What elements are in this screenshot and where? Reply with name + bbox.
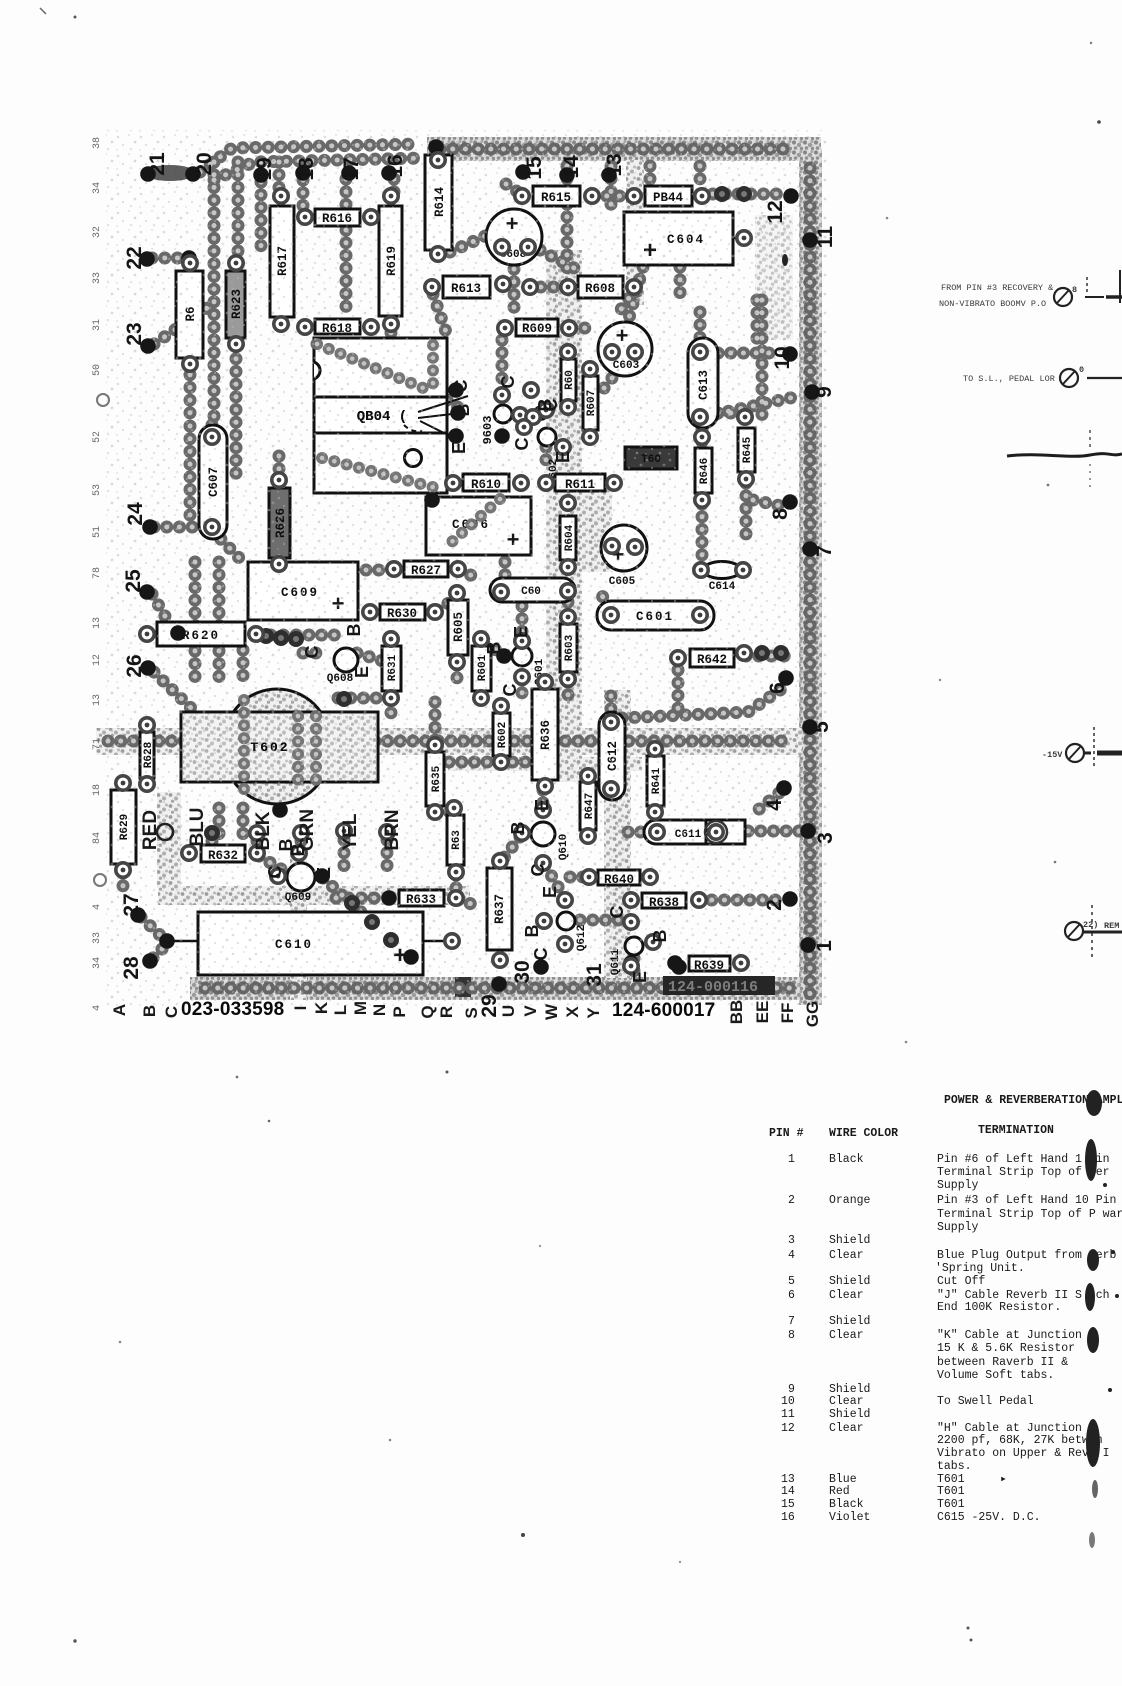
svg-text:T601: T601	[937, 1498, 965, 1511]
svg-text:17: 17	[340, 157, 363, 180]
svg-text:S: S	[462, 1007, 481, 1018]
svg-text:"K" Cable at Junction f: "K" Cable at Junction f	[937, 1329, 1096, 1342]
svg-text:To Swell Pedal: To Swell Pedal	[937, 1395, 1034, 1408]
svg-text:4: 4	[788, 1249, 795, 1262]
svg-text:4: 4	[92, 904, 103, 910]
svg-text:L: L	[331, 1005, 350, 1015]
svg-text:24: 24	[124, 502, 147, 526]
svg-text:BLK: BLK	[253, 811, 274, 850]
svg-text:C: C	[607, 906, 627, 919]
svg-text:3: 3	[788, 1234, 795, 1247]
svg-text:B: B	[522, 925, 542, 938]
svg-text:13: 13	[92, 617, 103, 629]
svg-text:between Raverb II &: between Raverb II &	[937, 1356, 1068, 1369]
svg-text:7: 7	[813, 545, 836, 557]
svg-text:TERMINATION: TERMINATION	[978, 1124, 1054, 1137]
svg-text:Black: Black	[829, 1498, 864, 1511]
svg-text:M: M	[351, 1001, 370, 1015]
svg-text:K: K	[312, 1001, 331, 1014]
svg-text:50: 50	[92, 364, 103, 376]
svg-text:NON-VIBRATO BOOMV P.O: NON-VIBRATO BOOMV P.O	[939, 299, 1046, 309]
svg-text:23: 23	[123, 322, 146, 345]
svg-text:18: 18	[295, 157, 318, 181]
svg-text:10: 10	[771, 346, 794, 369]
svg-text:53: 53	[92, 484, 103, 496]
svg-text:22): 22)	[1083, 920, 1098, 930]
svg-text:52: 52	[92, 431, 103, 443]
svg-text:Clear: Clear	[829, 1422, 864, 1435]
svg-text:WIRE COLOR: WIRE COLOR	[829, 1127, 898, 1140]
svg-text:12: 12	[781, 1422, 795, 1435]
svg-text:4: 4	[763, 799, 786, 811]
svg-text:7: 7	[788, 1315, 795, 1328]
svg-text:Pin #6 of Left Hand 1 Pin: Pin #6 of Left Hand 1 Pin	[937, 1153, 1110, 1166]
svg-text:51: 51	[92, 526, 103, 538]
svg-text:E: E	[532, 799, 552, 811]
svg-text:C: C	[512, 438, 532, 451]
svg-text:25: 25	[122, 569, 145, 593]
svg-text:C: C	[528, 864, 548, 877]
svg-text:15 K & 5.6K Resistor: 15 K & 5.6K Resistor	[937, 1342, 1075, 1355]
svg-text:P: P	[390, 1006, 409, 1017]
svg-text:Shield: Shield	[829, 1275, 870, 1288]
svg-text:11: 11	[814, 226, 837, 249]
svg-text:End 100K Resistor.: End 100K Resistor.	[937, 1301, 1061, 1314]
svg-text:T601: T601	[937, 1485, 965, 1498]
svg-text:Cut Off: Cut Off	[937, 1275, 985, 1288]
svg-text:V: V	[521, 1005, 540, 1017]
svg-text:29: 29	[478, 994, 501, 1017]
svg-text:RED: RED	[140, 810, 161, 850]
svg-text:32: 32	[92, 226, 103, 238]
svg-text:78: 78	[92, 567, 103, 579]
svg-text:Volume Soft tabs.: Volume Soft tabs.	[937, 1369, 1054, 1382]
svg-text:Shield: Shield	[829, 1408, 870, 1421]
svg-text:FROM PIN #3 RECOVERY &: FROM PIN #3 RECOVERY &	[941, 283, 1053, 293]
svg-text:2: 2	[788, 1194, 795, 1207]
svg-text:Orange: Orange	[829, 1194, 871, 1207]
svg-text:B: B	[344, 624, 364, 637]
svg-text:8: 8	[788, 1329, 795, 1342]
svg-text:11: 11	[781, 1408, 795, 1421]
svg-text:X: X	[563, 1006, 582, 1018]
svg-text:Terminal Strip Top of wer: Terminal Strip Top of wer	[937, 1166, 1110, 1179]
svg-text:E: E	[449, 442, 469, 454]
svg-text:Black: Black	[829, 1153, 864, 1166]
svg-text:C: C	[498, 376, 518, 389]
svg-text:18: 18	[92, 784, 103, 796]
svg-text:1: 1	[788, 1153, 795, 1166]
svg-text:FF: FF	[778, 1003, 797, 1024]
svg-text:C: C	[500, 684, 520, 697]
svg-text:14: 14	[560, 155, 583, 179]
svg-text:C: C	[162, 1006, 181, 1018]
svg-text:E: E	[314, 867, 334, 879]
svg-text:10: 10	[781, 1395, 795, 1408]
svg-text:E: E	[553, 451, 573, 463]
svg-text:GG: GG	[803, 1001, 822, 1027]
svg-text:E: E	[352, 666, 372, 678]
svg-text:C: C	[302, 646, 322, 659]
svg-text:20: 20	[193, 152, 216, 175]
svg-text:Red: Red	[829, 1485, 850, 1498]
svg-text:BRN: BRN	[382, 809, 403, 850]
svg-text:15: 15	[781, 1498, 795, 1511]
svg-text:C: C	[531, 948, 551, 961]
svg-text:B: B	[140, 1005, 159, 1017]
svg-text:34: 34	[92, 182, 103, 194]
svg-text:30: 30	[511, 960, 534, 983]
svg-text:Shield: Shield	[829, 1315, 870, 1328]
svg-text:15: 15	[523, 156, 546, 180]
svg-text:6: 6	[788, 1289, 795, 1302]
svg-text:I: I	[291, 1006, 310, 1011]
svg-text:33: 33	[92, 932, 103, 944]
svg-text:TO S.L., PEDAL LOR: TO S.L., PEDAL LOR	[963, 374, 1055, 384]
svg-text:Shield: Shield	[829, 1234, 870, 1247]
svg-text:16: 16	[781, 1511, 795, 1524]
svg-text:Vibrato on Upper & Reve I: Vibrato on Upper & Reve I	[937, 1447, 1110, 1460]
svg-text:13: 13	[92, 694, 103, 706]
svg-text:Clear: Clear	[829, 1249, 864, 1262]
svg-text:Supply: Supply	[937, 1179, 979, 1192]
svg-text:B: B	[508, 822, 528, 835]
svg-text:Clear: Clear	[829, 1329, 864, 1342]
svg-text:19: 19	[253, 157, 276, 180]
svg-text:EE: EE	[753, 1001, 772, 1024]
svg-text:W: W	[542, 1003, 561, 1020]
svg-text:Clear: Clear	[829, 1395, 864, 1408]
svg-text:31: 31	[583, 963, 606, 987]
svg-text:BB: BB	[727, 1000, 746, 1025]
svg-text:14: 14	[781, 1485, 795, 1498]
svg-text:22: 22	[123, 246, 146, 269]
svg-text:21: 21	[146, 152, 169, 176]
svg-text:E: E	[511, 626, 531, 638]
svg-text:31: 31	[92, 319, 103, 331]
svg-text:3: 3	[814, 832, 837, 844]
svg-text:71: 71	[92, 738, 103, 750]
svg-text:B: B	[453, 404, 473, 417]
svg-text:BLU: BLU	[187, 807, 208, 846]
svg-text:6: 6	[766, 682, 789, 694]
svg-text:124-600017: 124-600017	[612, 1000, 715, 1021]
svg-text:Violet: Violet	[829, 1511, 870, 1524]
svg-text:4: 4	[92, 1005, 103, 1011]
svg-text:12: 12	[764, 200, 787, 223]
svg-text:'Spring Unit.: 'Spring Unit.	[935, 1262, 1025, 1275]
svg-text:-15V: -15V	[1042, 750, 1063, 760]
svg-text:5: 5	[788, 1275, 795, 1288]
svg-text:E: E	[630, 971, 650, 983]
svg-text:33: 33	[92, 272, 103, 284]
svg-text:023-033598: 023-033598	[181, 999, 284, 1020]
svg-text:28: 28	[120, 956, 143, 980]
svg-text:12: 12	[92, 654, 103, 666]
svg-text:tabs.: tabs.	[937, 1460, 972, 1473]
svg-text:9: 9	[813, 386, 836, 398]
svg-text:38: 38	[92, 137, 103, 149]
svg-text:Q: Q	[418, 1005, 437, 1018]
svg-text:1: 1	[813, 940, 836, 952]
svg-text:Supply: Supply	[937, 1221, 979, 1234]
svg-text:B: B	[650, 930, 670, 943]
svg-text:16: 16	[384, 154, 407, 177]
svg-text:8: 8	[769, 508, 792, 520]
svg-text:84: 84	[92, 832, 103, 844]
svg-text:Terminal Strip Top of P war: Terminal Strip Top of P war	[937, 1208, 1122, 1221]
svg-text:B: B	[535, 399, 555, 412]
svg-text:8: 8	[1072, 285, 1077, 295]
svg-text:REM: REM	[1104, 921, 1119, 931]
svg-text:E: E	[540, 886, 560, 898]
svg-text:U: U	[499, 1005, 518, 1017]
svg-text:5: 5	[810, 721, 833, 733]
svg-text:▸: ▸	[1000, 1473, 1007, 1486]
svg-text:N: N	[370, 1004, 389, 1016]
svg-text:R: R	[437, 1006, 456, 1018]
svg-text:B: B	[484, 642, 504, 655]
svg-text:0: 0	[1079, 365, 1084, 375]
svg-text:B: B	[276, 839, 296, 852]
svg-text:PIN #: PIN #	[769, 1127, 804, 1140]
svg-text:A: A	[110, 1004, 129, 1016]
svg-text:C615 -25V. D.C.: C615 -25V. D.C.	[937, 1511, 1041, 1524]
svg-text:27: 27	[120, 893, 143, 916]
svg-text:26: 26	[123, 654, 146, 677]
svg-text:Y: Y	[584, 1007, 603, 1019]
svg-text:13: 13	[603, 153, 626, 176]
svg-text:C: C	[451, 380, 471, 393]
svg-text:124-000116: 124-000116	[668, 979, 758, 996]
svg-text:2200 pf, 68K, 27K betw n: 2200 pf, 68K, 27K betw n	[937, 1434, 1103, 1447]
svg-text:YEL: YEL	[340, 813, 361, 850]
svg-text:Pin #3 of Left Hand 10 Pin: Pin #3 of Left Hand 10 Pin	[937, 1194, 1116, 1207]
svg-text:Clear: Clear	[829, 1289, 864, 1302]
svg-text:C: C	[265, 866, 285, 879]
svg-text:2: 2	[763, 899, 786, 911]
svg-text:34: 34	[92, 957, 103, 969]
